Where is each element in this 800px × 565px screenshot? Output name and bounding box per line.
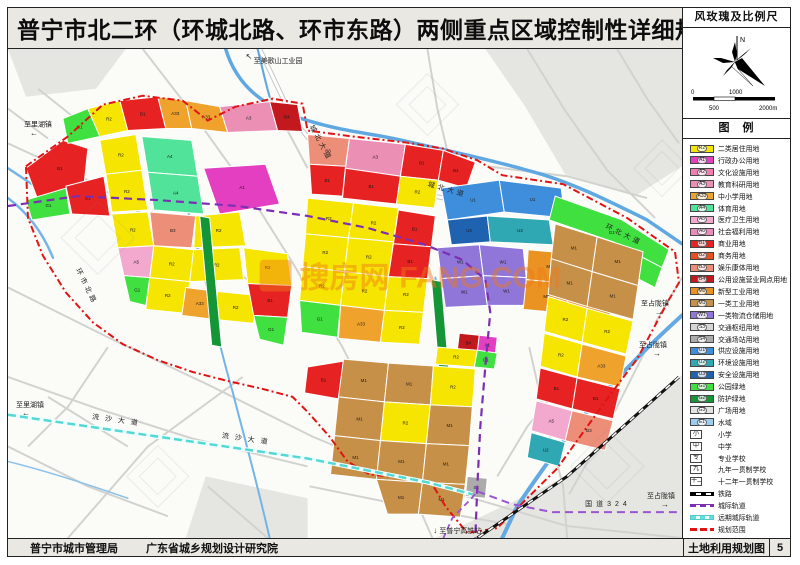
- legend-code: E1: [697, 419, 707, 426]
- parcel-code-label: R2: [403, 420, 409, 425]
- parcel-code-label: A3: [372, 154, 378, 159]
- legend-code: A1: [697, 157, 707, 164]
- parcel-code-label: R2: [106, 117, 112, 122]
- legend-item: M0新型工业用地: [690, 286, 787, 297]
- legend-color-swatch: A4: [690, 204, 714, 212]
- legend-code: A5: [697, 216, 707, 223]
- legend-symbol-swatch: 九: [690, 465, 714, 474]
- legend-item: 远期城际轨道: [690, 512, 787, 523]
- svg-text:2000m: 2000m: [759, 106, 777, 112]
- windrose-box: 风玫瑰及比例尺 N 0 1000: [683, 8, 790, 119]
- parcel-code-label: G1: [317, 316, 323, 321]
- legend-label: 教育科研用地: [718, 179, 759, 189]
- legend-color-swatch: E1: [690, 418, 714, 426]
- direction-arrow-icon: →: [653, 349, 661, 358]
- legend-code: S3: [697, 324, 707, 331]
- legend-item: U3安全设施用地: [690, 369, 787, 380]
- parcel-code-label: R2: [558, 353, 564, 358]
- legend-color-swatch: G3: [690, 406, 714, 414]
- svg-text:1000: 1000: [729, 90, 743, 96]
- legend-color-swatch: B4: [690, 275, 714, 283]
- parcel-code-label: G1: [45, 203, 51, 208]
- school-symbol-icon: 专: [690, 454, 702, 463]
- legend-code: B3: [697, 264, 707, 271]
- future-line-icon: [690, 515, 714, 520]
- parcel-code-label: R2: [366, 255, 372, 260]
- legend-item: A6社会福利用地: [690, 226, 787, 237]
- legend-label: 新型工业用地: [718, 286, 759, 296]
- legend-label: 供应设施用地: [718, 346, 759, 356]
- parcel-code-label: B1: [412, 227, 418, 232]
- legend-label: 广场用地: [718, 405, 746, 415]
- parcel-code-label: M1: [446, 423, 453, 428]
- school-symbol-icon: 十二: [690, 477, 702, 486]
- legend-label: 商业用地: [718, 239, 746, 249]
- legend-color-swatch: M1: [690, 299, 714, 307]
- footer-page-number: 5: [769, 539, 790, 556]
- direction-arrow-icon: ←: [22, 409, 30, 418]
- parcel-code-label: M1: [567, 280, 574, 285]
- parcel-code-label: M1: [571, 245, 578, 250]
- parcel-code-label: A5: [548, 418, 554, 423]
- legend-code: G1: [697, 383, 708, 390]
- windrose-icon: [713, 42, 765, 86]
- parcel-code-label: A33: [196, 301, 204, 306]
- legend-color-swatch: U1: [690, 347, 714, 355]
- legend-code: A3: [697, 181, 707, 188]
- parcel-code-label: M1: [398, 459, 405, 464]
- land-use-map[interactable]: B1G1R2B1A33G1B1R2R2A4A4A1B3R2A33A3B4R2A5…: [8, 49, 682, 538]
- footer-sheet-name: 土地利用规划图: [683, 539, 769, 556]
- parcel-code-label: B1: [554, 386, 560, 391]
- parcel-code-label: B3: [170, 228, 176, 233]
- legend-line-swatch: [690, 528, 714, 531]
- legend-item: 十二十二年一贯制学校: [690, 476, 787, 487]
- parcel-code-label: R2: [399, 325, 405, 330]
- parcel-code-label: B1: [57, 166, 63, 171]
- footer-bar: 普宁市城市管理局 广东省城乡规划设计研究院 土地利用规划图 5: [8, 538, 790, 556]
- legend-symbol-swatch: 中: [690, 442, 714, 451]
- parcel-code-label: B1: [368, 184, 374, 189]
- legend-label: 环境设施用地: [718, 358, 759, 368]
- parcel-code-label: R2: [415, 190, 421, 195]
- legend-line-swatch: [690, 515, 714, 520]
- school-symbol-icon: 小: [690, 430, 702, 439]
- legend-code: S4: [697, 336, 707, 343]
- parcel-code-label: R2: [604, 329, 610, 334]
- parcel-code-label: U1: [470, 198, 476, 203]
- direction-arrow-icon: →: [655, 307, 663, 316]
- legend-label: 娱乐康体用地: [718, 263, 759, 273]
- legend-list: R2二类居住用地A1行政办公用地A2文化设施用地A3教育科研用地A33中小学用地…: [683, 139, 790, 538]
- legend-item: U1供应设施用地: [690, 345, 787, 356]
- legend-label: 铁路: [718, 489, 732, 499]
- parcel-code-label: M1: [398, 495, 405, 500]
- parcel-code-label: M1: [406, 382, 413, 387]
- legend-color-swatch: M0: [690, 287, 714, 295]
- parcel-code-label: U2: [543, 447, 549, 452]
- legend-label: 中小学用地: [718, 191, 753, 201]
- parcel-code-label: R2: [216, 228, 222, 233]
- legend-item: A33中小学用地: [690, 191, 787, 202]
- parcel-code-label: M1: [356, 416, 363, 421]
- legend-label: 十二年一贯制学校: [718, 477, 773, 487]
- legend-item: 专专业学校: [690, 453, 787, 464]
- map-label: 至占陇镇: [647, 491, 675, 500]
- legend-item: B2商务用地: [690, 250, 787, 261]
- parcel-code-label: A33: [171, 111, 179, 116]
- page-title: 普宁市北二环（环城北路、环市东路）两侧重点区域控制性详细规划: [17, 11, 722, 45]
- legend-label: 一类物流仓储用地: [718, 310, 773, 320]
- legend-code: M1: [697, 300, 708, 307]
- legend-label: 公园绿地: [718, 382, 746, 392]
- direction-arrow-icon: ↖: [246, 52, 253, 61]
- parcel-code-label: M1: [361, 378, 368, 383]
- legend-color-swatch: A3: [690, 180, 714, 188]
- legend-code: A2: [697, 169, 707, 176]
- legend-item: R2二类居住用地: [690, 143, 787, 154]
- parcel-code-label: A33: [357, 322, 365, 327]
- bound-line-icon: [690, 528, 714, 531]
- legend-color-swatch: U3: [690, 371, 714, 379]
- map-label: 至占陇镇: [639, 340, 667, 349]
- legend-item: 九九年一贯制学校: [690, 464, 787, 475]
- svg-text:500: 500: [709, 106, 720, 112]
- sidebar: 风玫瑰及比例尺 N 0 1000: [682, 8, 790, 538]
- footer-agency-1: 普宁市城市管理局: [8, 539, 140, 556]
- parcel-code-label: R2: [371, 220, 377, 225]
- direction-arrow-icon: →: [661, 500, 669, 509]
- legend-color-swatch: U2: [690, 359, 714, 367]
- legend-symbol-swatch: 十二: [690, 477, 714, 486]
- parcel-code-label: B4: [466, 340, 472, 345]
- legend-code: U2: [697, 359, 707, 366]
- legend-label: 小学: [718, 429, 732, 439]
- legend-label: 文化设施用地: [718, 167, 759, 177]
- legend-color-swatch: R2: [690, 145, 714, 153]
- legend-code: A33: [696, 193, 709, 200]
- parcel-code-label: B1: [267, 298, 273, 303]
- legend-color-swatch: A33: [690, 192, 714, 200]
- legend-item: G3广场用地: [690, 405, 787, 416]
- legend-item: B1商业用地: [690, 238, 787, 249]
- legend-code: W1: [696, 312, 708, 319]
- legend-color-swatch: A6: [690, 228, 714, 236]
- legend-label: 专业学校: [718, 453, 746, 463]
- parcel-code-label: R2: [130, 227, 136, 232]
- parcel-code-label: B1: [321, 378, 327, 383]
- parcel-code-label: B1: [593, 396, 599, 401]
- legend-color-swatch: S4: [690, 335, 714, 343]
- legend-item: 规划范围: [690, 524, 787, 535]
- map-label: 至美歌山工业园: [254, 56, 303, 65]
- legend-code: U3: [697, 371, 707, 378]
- legend-label: 防护绿地: [718, 393, 746, 403]
- parcel-code-label: R2: [322, 250, 328, 255]
- legend-label: 行政办公用地: [718, 155, 759, 165]
- plan-sheet: 普宁市北二环（环城北路、环市东路）两侧重点区域控制性详细规划: [7, 7, 791, 557]
- legend-label: 一类工业用地: [718, 298, 759, 308]
- map-area[interactable]: B1G1R2B1A33G1B1R2R2A4A4A1B3R2A33A3B4R2A5…: [8, 49, 682, 538]
- legend-label: 公用设施营业网点用地: [718, 274, 787, 284]
- legend-item: E1水域: [690, 417, 787, 428]
- legend-label: 安全设施用地: [718, 370, 759, 380]
- legend-item: W1一类物流仓储用地: [690, 310, 787, 321]
- legend-code: A6: [697, 228, 707, 235]
- legend-item: A4体育用地: [690, 203, 787, 214]
- direction-arrow-icon: ←: [30, 128, 38, 137]
- direction-arrow-icon: ↓: [433, 526, 437, 535]
- legend-item: 中中学: [690, 441, 787, 452]
- parcel-code-label: M1: [609, 293, 616, 298]
- legend-item: 城际轨道: [690, 500, 787, 511]
- parcel-code-label: U3: [466, 228, 472, 233]
- legend-item: B3娱乐康体用地: [690, 262, 787, 273]
- parcel-code-label: A33: [597, 364, 605, 369]
- legend-item: U2环境设施用地: [690, 357, 787, 368]
- scale-bar: 0 1000 500 2000m: [691, 90, 777, 112]
- parcel-code-label: M1: [443, 462, 450, 467]
- map-label: 至里湖镇: [24, 120, 52, 129]
- watermark-en: FANG.COM: [399, 262, 560, 295]
- legend-code: M0: [697, 288, 708, 295]
- parcel-code-label: A4: [173, 191, 179, 196]
- legend-code: B4: [697, 276, 707, 283]
- legend-label: 城际轨道: [718, 501, 746, 511]
- parcel-code-label: U2: [517, 228, 523, 233]
- legend-label: 二类居住用地: [718, 143, 759, 153]
- svg-text:0: 0: [691, 90, 695, 96]
- legend-code: A4: [697, 205, 707, 212]
- legend-label: 中学: [718, 441, 732, 451]
- legend-color-swatch: B2: [690, 252, 714, 260]
- legend-color-swatch: A5: [690, 216, 714, 224]
- footer-agency-2: 广东省城乡规划设计研究院: [140, 539, 683, 556]
- legend-code: R2: [697, 145, 707, 152]
- legend-color-swatch: B3: [690, 264, 714, 272]
- legend-label: 九年一贯制学校: [718, 465, 766, 475]
- legend-label: 医疗卫生用地: [718, 215, 759, 225]
- map-label: 至占陇镇: [641, 298, 669, 307]
- legend-item: S3交通枢纽用地: [690, 322, 787, 333]
- legend-symbol-swatch: 小: [690, 430, 714, 439]
- legend-color-swatch: S3: [690, 323, 714, 331]
- legend-code: G2: [697, 395, 708, 402]
- legend-item: A2文化设施用地: [690, 167, 787, 178]
- school-symbol-icon: 中: [690, 442, 702, 451]
- parcel-code-label: G1: [268, 327, 274, 332]
- legend-label: 体育用地: [718, 203, 746, 213]
- parcel-code-label: B1: [419, 160, 425, 165]
- legend-label: 交通枢纽用地: [718, 322, 759, 332]
- legend-label: 规划范围: [718, 524, 746, 534]
- parcel-code-label: R2: [233, 305, 239, 310]
- parcel-code-label: R2: [124, 189, 130, 194]
- legend-item: A1行政办公用地: [690, 155, 787, 166]
- legend-color-swatch: B1: [690, 240, 714, 248]
- parcel-code-label: B1: [325, 178, 331, 183]
- map-label: 国道324: [585, 499, 631, 508]
- legend-symbol-swatch: 专: [690, 454, 714, 463]
- legend-item: B4公用设施营业网点用地: [690, 274, 787, 285]
- legend-title: 图 例: [683, 119, 790, 139]
- parcel-code-label: A5: [134, 259, 140, 264]
- legend-color-swatch: A1: [690, 156, 714, 164]
- parcel-code-label: A1: [239, 185, 245, 190]
- legend-line-swatch: [690, 504, 714, 507]
- map-label: 至普宁高铁站: [439, 526, 481, 535]
- parcel-code-label: B3: [586, 428, 592, 433]
- school-symbol-icon: 九: [690, 465, 702, 474]
- legend-item: G1公园绿地: [690, 381, 787, 392]
- legend-color-swatch: W1: [690, 311, 714, 319]
- map-label: 流沙大道: [221, 431, 274, 447]
- parcel-code-label: R2: [450, 384, 456, 389]
- parcel-code-label: R2: [118, 152, 124, 157]
- legend-code: U1: [697, 347, 707, 354]
- parcel-code-label: G1: [134, 288, 140, 293]
- legend-label: 交通场站用地: [718, 334, 759, 344]
- legend-label: 水域: [718, 417, 732, 427]
- legend-color-swatch: A2: [690, 168, 714, 176]
- legend-color-swatch: G2: [690, 395, 714, 403]
- parcel-code-label: M1: [352, 455, 359, 460]
- parcel-code-label: R2: [563, 317, 569, 322]
- parcel-code-label: R2: [165, 293, 171, 298]
- legend-code: G3: [697, 407, 708, 414]
- windrose-and-scale: N 0 1000: [685, 28, 789, 118]
- legend-label: 远期城际轨道: [718, 513, 759, 523]
- north-label: N: [740, 37, 745, 44]
- legend-code: B1: [697, 240, 707, 247]
- parcel-code-label: R2: [169, 261, 175, 266]
- watermark-cn: 搜房网: [300, 262, 390, 295]
- parcel-code-label: A4: [167, 154, 173, 159]
- watermark-fang: 搜房网 FANG.COM: [260, 260, 561, 295]
- legend-item: 铁路: [690, 488, 787, 499]
- legend-item: S4交通场站用地: [690, 334, 787, 345]
- legend-item: A5医疗卫生用地: [690, 214, 787, 225]
- parcel-code-label: B1: [140, 112, 146, 117]
- legend-line-swatch: [690, 492, 714, 496]
- legend-item: 小小学: [690, 429, 787, 440]
- map-label: 至里湖镇: [16, 400, 44, 409]
- metro-line-icon: [690, 504, 714, 507]
- parcel-code-label: B1: [453, 168, 459, 173]
- legend-code: B2: [697, 252, 707, 259]
- rail-line-icon: [690, 492, 714, 496]
- legend-item: M1一类工业用地: [690, 298, 787, 309]
- parcel-code-label: U1: [530, 197, 536, 202]
- creek-southwest: [8, 461, 128, 498]
- parcel-code-label: R2: [214, 262, 220, 267]
- parcel-code-label: A3: [246, 115, 252, 120]
- title-bar: 普宁市北二环（环城北路、环市东路）两侧重点区域控制性详细规划: [8, 8, 682, 49]
- legend-label: 商务用地: [718, 251, 746, 261]
- parcel-code-label: R2: [453, 355, 459, 360]
- legend-item: G2防护绿地: [690, 393, 787, 404]
- legend-label: 社会福利用地: [718, 227, 759, 237]
- parcel-code-label: M1: [614, 259, 621, 264]
- legend-color-swatch: G1: [690, 383, 714, 391]
- legend-item: A3教育科研用地: [690, 179, 787, 190]
- legend-box: 图 例 R2二类居住用地A1行政办公用地A2文化设施用地A3教育科研用地A33中…: [683, 119, 790, 538]
- windrose-title: 风玫瑰及比例尺: [683, 8, 790, 28]
- parcel-code-label: B4: [284, 115, 290, 120]
